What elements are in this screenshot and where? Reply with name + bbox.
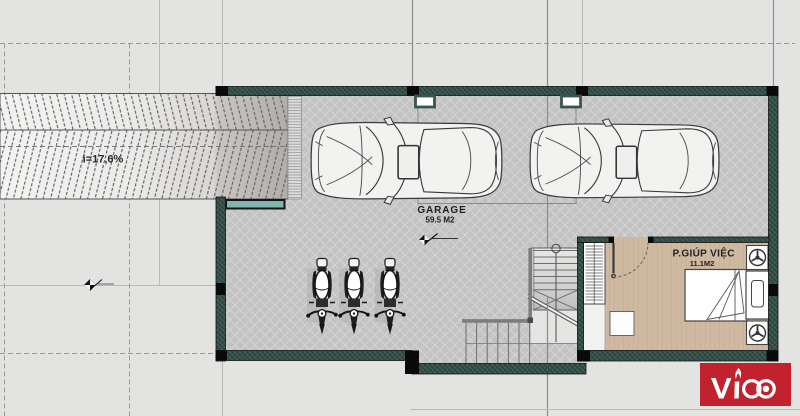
svg-text:P.GIÚP VIỆC: P.GIÚP VIỆC bbox=[673, 247, 735, 260]
svg-text:11.1M2: 11.1M2 bbox=[690, 259, 715, 268]
svg-text:59.5 M2: 59.5 M2 bbox=[426, 216, 455, 225]
svg-text:GARAGE: GARAGE bbox=[417, 205, 466, 216]
svg-text:i=17,6%: i=17,6% bbox=[83, 154, 124, 166]
